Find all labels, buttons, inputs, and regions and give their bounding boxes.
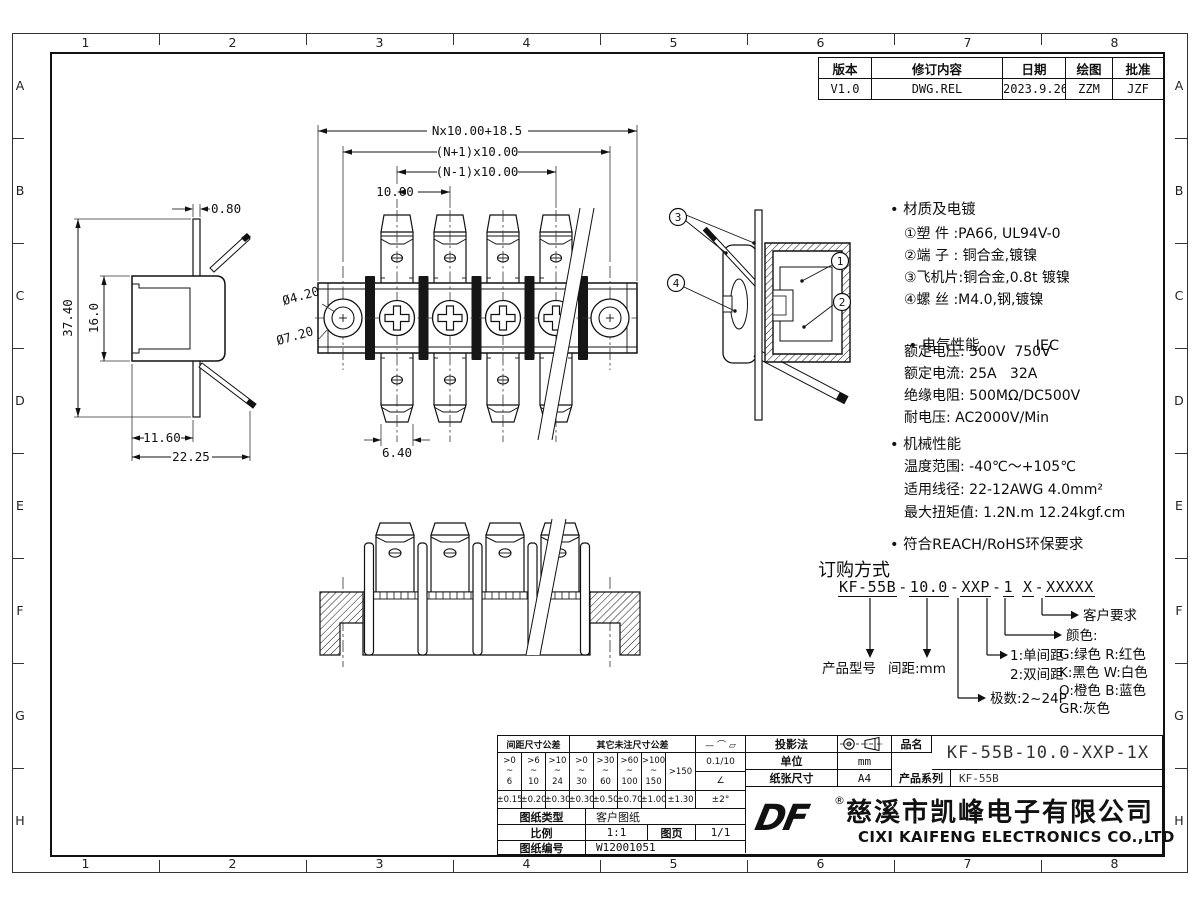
electrical-line: 绝缘电阻: 500MΩ/DC500V <box>904 385 1080 405</box>
callout-number: 4 <box>673 277 680 290</box>
ordering-separator: - <box>949 578 961 596</box>
angle-symbol: ∠ <box>696 772 745 791</box>
dim-total-length: Nx10.00+18.5 <box>432 123 522 138</box>
zone-tick <box>306 860 307 872</box>
zone-row-label: G <box>1172 663 1186 768</box>
tolerance-value: ±1.00 <box>642 791 666 809</box>
tolerance-value: ±1.30 <box>666 791 696 809</box>
zone-col-label: 1 <box>12 35 159 50</box>
material-section-title: • 材质及电镀 <box>890 198 976 219</box>
geometry-symbols: — ⌒ ▱ <box>696 736 745 753</box>
ordering-seg-color: X <box>1022 578 1034 597</box>
zone-tick <box>1041 860 1042 872</box>
zone-tick <box>747 860 748 872</box>
zone-row-label: B <box>1172 138 1186 243</box>
tolerance-range: >6 ~ 10 <box>522 753 546 791</box>
scale-value: 1:1 <box>586 825 648 841</box>
callout-number: 1 <box>837 255 844 268</box>
ordering-color-row: GR:灰色 <box>1059 700 1110 717</box>
sheet-value: 1/1 <box>696 825 745 841</box>
zone-row-label: F <box>13 558 27 663</box>
tolerance-range: >0 ~ 6 <box>498 753 522 791</box>
projection-label: 投影法 <box>746 736 838 753</box>
tolerance-range: >100 ~ 150 <box>642 753 666 791</box>
callout-balloon-1: 1 <box>832 253 849 270</box>
callout-balloon-2: 2 <box>834 294 851 311</box>
tolerance-value: ±0.20 <box>522 791 546 809</box>
revision-header: 绘图 <box>1066 58 1113 79</box>
zone-tick <box>1175 138 1187 139</box>
revision-header: 版本 <box>819 58 872 79</box>
zone-tick <box>600 860 601 872</box>
part-name-label: 品名 <box>892 736 932 753</box>
zone-tick <box>306 33 307 45</box>
ordering-seg-row: 1 <box>1003 578 1015 597</box>
zone-col-label: 3 <box>306 35 453 50</box>
zone-tick <box>600 33 601 45</box>
zone-col-label: 3 <box>306 856 453 871</box>
zone-tick <box>1175 348 1187 349</box>
ordering-separator: - <box>1034 578 1046 596</box>
tolerance-header-other: 其它未注尺寸公差 <box>570 736 696 753</box>
zone-tick <box>1175 558 1187 559</box>
material-line: ①塑 件 :PA66, UL94V-0 <box>904 223 1061 243</box>
material-line: ④螺 丝 :M4.0,钢,镀镍 <box>904 289 1043 309</box>
zone-col-label: 6 <box>747 856 894 871</box>
revision-header: 批准 <box>1113 58 1164 79</box>
tolerance-value: ±0.50 <box>594 791 618 809</box>
title-block: 间距尺寸公差 其它未注尺寸公差 — ⌒ ▱ >0 ~ 6 >6 ~ 10 >10… <box>497 735 1163 855</box>
ordering-seg-pitch: 10.0 <box>909 578 949 597</box>
zone-col-label: 6 <box>747 35 894 50</box>
zone-tick <box>747 33 748 45</box>
tolerance-value: ±0.15 <box>498 791 522 809</box>
section-view-drawing: 3 4 1 2 <box>650 195 862 430</box>
zone-tick <box>12 558 24 559</box>
revision-version: V1.0 <box>819 79 872 100</box>
mechanical-line: 最大扭矩值: 1.2N.m 12.24kgf.cm <box>904 502 1125 522</box>
mechanical-line: 适用线径: 22-12AWG 4.0mm² <box>904 479 1103 499</box>
revision-date: 2023.9.26 <box>1003 79 1066 100</box>
dim-pole-span: (N-1)x10.00 <box>436 164 519 179</box>
revision-table: 版本 修订内容 日期 绘图 批准 V1.0 DWG.REL 2023.9.26 … <box>818 57 1164 100</box>
company-name-cn: 慈溪市凯峰电子有限公司 <box>846 792 1154 829</box>
ordering-label-color: 颜色: <box>1066 627 1098 644</box>
revision-header: 日期 <box>1003 58 1066 79</box>
mechanical-section-title: • 机械性能 <box>890 433 961 454</box>
unit-value: mm <box>838 753 892 770</box>
tab-width-extensions <box>364 424 430 446</box>
zone-tick <box>12 243 24 244</box>
engineering-drawing-sheet: { "border": { "cols": ["1","2","3","4","… <box>0 0 1200 910</box>
mechanical-line: 温度范围: -40℃～+105℃ <box>904 456 1076 476</box>
ordering-label-poles: 极数:2~24P <box>990 691 1067 707</box>
callout-number: 3 <box>675 211 682 224</box>
zone-tick <box>1175 243 1187 244</box>
revision-drawn-by: ZZM <box>1066 79 1113 100</box>
thickness-extensions <box>172 204 210 217</box>
zone-col-label: 8 <box>1041 35 1188 50</box>
revision-header-row: 版本 修订内容 日期 绘图 批准 <box>819 58 1164 79</box>
dim-tab-width: 6.40 <box>382 445 412 460</box>
mounting-hole <box>582 266 638 370</box>
company-name-en: CIXI KAIFENG ELECTRONICS CO.,LTD <box>858 828 1175 846</box>
zone-tick <box>12 663 24 664</box>
ordering-label-custom: 客户要求 <box>1083 607 1137 624</box>
zone-col-label: 5 <box>600 856 747 871</box>
zone-row-label: F <box>1172 558 1186 663</box>
housing-profile <box>132 276 225 361</box>
tolerance-range: >150 <box>666 753 696 791</box>
zone-row-label: E <box>1172 453 1186 558</box>
compliance-note: • 符合REACH/RoHS环保要求 <box>890 533 1083 554</box>
zone-row-label: C <box>1172 243 1186 348</box>
zone-tick <box>159 860 160 872</box>
dimension-arrowheads <box>318 128 637 195</box>
scale-label: 比例 <box>498 825 586 841</box>
dim-depth-body: 11.60 <box>143 430 181 445</box>
dim-depth-total: 22.25 <box>172 449 210 464</box>
material-line: ③飞机片:铜合金,0.8t 镀镍 <box>904 267 1070 287</box>
ordering-label-single: 1:单间距 <box>1010 648 1064 664</box>
zone-col-label: 5 <box>600 35 747 50</box>
ordering-label-pitch: 间距:mm <box>888 661 946 677</box>
zone-tick <box>12 768 24 769</box>
front-view-drawing: Nx10.00+18.5 (N+1)x10.00 (N-1)x10.00 10.… <box>280 110 675 475</box>
tolerance-range: >60 ~ 100 <box>618 753 642 791</box>
callout-number: 2 <box>839 296 846 309</box>
zone-row-label: G <box>13 663 27 768</box>
zone-row-label: C <box>13 243 27 348</box>
electrical-line: 额定电压: 300V 750V <box>904 341 1051 361</box>
paper-size-value: A4 <box>838 770 892 787</box>
dim-hole-inner-diameter: Ø4.20 <box>281 283 321 308</box>
revision-content: DWG.REL <box>872 79 1003 100</box>
zone-tick <box>894 860 895 872</box>
dim-overall-height: 37.40 <box>60 299 75 337</box>
tolerance-value: ±0.70 <box>618 791 642 809</box>
ordering-seg-model: KF-55B <box>838 578 897 597</box>
zone-col-label: 7 <box>894 35 1041 50</box>
end-cap-section <box>590 592 640 655</box>
ordering-separator: - <box>991 578 1003 596</box>
angle-tolerance: ±2° <box>696 791 745 809</box>
part-name-value: KF-55B-10.0-XXP-1X <box>932 736 1164 770</box>
zone-tick <box>894 33 895 45</box>
dim-body-height: 16.0 <box>86 303 101 333</box>
zone-tick <box>453 33 454 45</box>
solder-lead <box>210 233 251 272</box>
zone-col-label: 4 <box>453 35 600 50</box>
zone-col-label: 7 <box>894 856 1041 871</box>
doc-type-value: 客户图纸 <box>586 809 745 825</box>
zone-row-label: H <box>13 768 27 873</box>
zone-row-label: D <box>13 348 27 453</box>
company-logo: DF <box>752 798 811 839</box>
electrical-line: 耐电压: AC2000V/Min <box>904 407 1049 427</box>
flange-plate <box>755 210 762 420</box>
zone-col-label: 1 <box>12 856 159 871</box>
series-label: 产品系列 <box>892 770 951 787</box>
callout-balloon-4: 4 <box>668 275 685 292</box>
dim-mounting-span: (N+1)x10.00 <box>436 144 519 159</box>
revision-value-row: V1.0 DWG.REL 2023.9.26 ZZM JZF <box>819 79 1164 100</box>
screw-side-profile <box>723 245 757 363</box>
first-angle-projection-icon <box>839 736 891 752</box>
zone-col-label: 4 <box>453 856 600 871</box>
electrical-line: 额定电流: 25A 32A <box>904 363 1037 383</box>
wire-port-inner <box>773 296 786 315</box>
zone-row-label: A <box>13 33 27 138</box>
ordering-separator: - <box>897 578 909 596</box>
depth-extensions <box>132 364 250 461</box>
end-cap-section <box>320 592 363 655</box>
ordering-color-row: O:橙色 B:蓝色 <box>1059 682 1146 699</box>
flatness-tolerance: 0.1/10 <box>696 753 745 772</box>
ordering-seg-custom: XXXXX <box>1045 578 1095 597</box>
drawing-number-value: W12001051 <box>586 841 745 854</box>
drawing-number-label: 图纸编号 <box>498 841 586 854</box>
zone-tick <box>1175 663 1187 664</box>
paper-size-label: 纸张尺寸 <box>746 770 838 787</box>
zone-tick <box>1175 768 1187 769</box>
tolerance-range: >0 ~ 30 <box>570 753 594 791</box>
callout-balloon-3: 3 <box>670 209 687 226</box>
zone-tick <box>1041 33 1042 45</box>
zone-tick <box>12 453 24 454</box>
zone-row-label: A <box>1172 33 1186 138</box>
tolerance-header-pitch: 间距尺寸公差 <box>498 736 570 753</box>
bottom-view-drawing <box>300 515 660 680</box>
revision-approved-by: JZF <box>1113 79 1164 100</box>
sheet-label: 图页 <box>648 825 696 841</box>
zone-col-label: 2 <box>159 856 306 871</box>
side-view-drawing: 0.80 37.40 16.0 11.60 22.25 <box>60 190 275 480</box>
dim-pitch: 10.00 <box>376 184 414 199</box>
tab-terminal <box>431 523 469 592</box>
zone-row-label: D <box>1172 348 1186 453</box>
zone-row-label: H <box>1172 768 1186 873</box>
tolerance-value: ±0.30 <box>570 791 594 809</box>
zone-tick <box>12 138 24 139</box>
material-line: ②端 子 : 铜合金,镀镍 <box>904 245 1037 265</box>
solder-lead <box>199 363 256 408</box>
zone-tick <box>12 348 24 349</box>
series-value: KF-55B <box>951 770 1164 787</box>
zone-row-label: E <box>13 453 27 558</box>
registered-mark: ® <box>834 794 845 807</box>
mounting-hole <box>315 266 371 370</box>
zone-tick <box>159 33 160 45</box>
ordering-seg-poles: XXP <box>960 578 991 597</box>
doc-type-label: 图纸类型 <box>498 809 586 825</box>
ordering-color-row: K:黑色 W:白色 <box>1059 664 1148 681</box>
zone-tick <box>453 860 454 872</box>
ordering-label-model: 产品型号 <box>822 661 876 677</box>
tolerance-range: >10 ~ 24 <box>546 753 570 791</box>
thickness-arrows <box>185 206 208 211</box>
dimension-lines <box>318 131 637 192</box>
ordering-color-row: G:绿色 R:红色 <box>1059 646 1146 663</box>
zone-col-label: 8 <box>1041 856 1188 871</box>
ordering-label-double: 2:双间距 <box>1010 667 1064 683</box>
tolerance-value: ±0.30 <box>546 791 570 809</box>
ordering-diagram: 产品型号 间距:mm 极数:2~24P 1:单间距 2:双间距 颜色: G:绿色… <box>810 598 1162 725</box>
tab-terminal <box>486 523 524 592</box>
unit-label: 单位 <box>746 753 838 770</box>
dim-plate-thickness: 0.80 <box>211 201 241 216</box>
zone-col-label: 2 <box>159 35 306 50</box>
revision-header: 修订内容 <box>872 58 1003 79</box>
tab-terminal <box>376 523 414 592</box>
tolerance-range: >30 ~ 60 <box>594 753 618 791</box>
ordering-code: KF-55B - 10.0 - XXP - 1 X - XXXXX <box>838 578 1095 597</box>
projection-symbol-cell <box>838 736 892 753</box>
zone-row-label: B <box>13 138 27 243</box>
dim-hole-outer-diameter: Ø7.20 <box>275 323 315 348</box>
zone-tick <box>1175 453 1187 454</box>
